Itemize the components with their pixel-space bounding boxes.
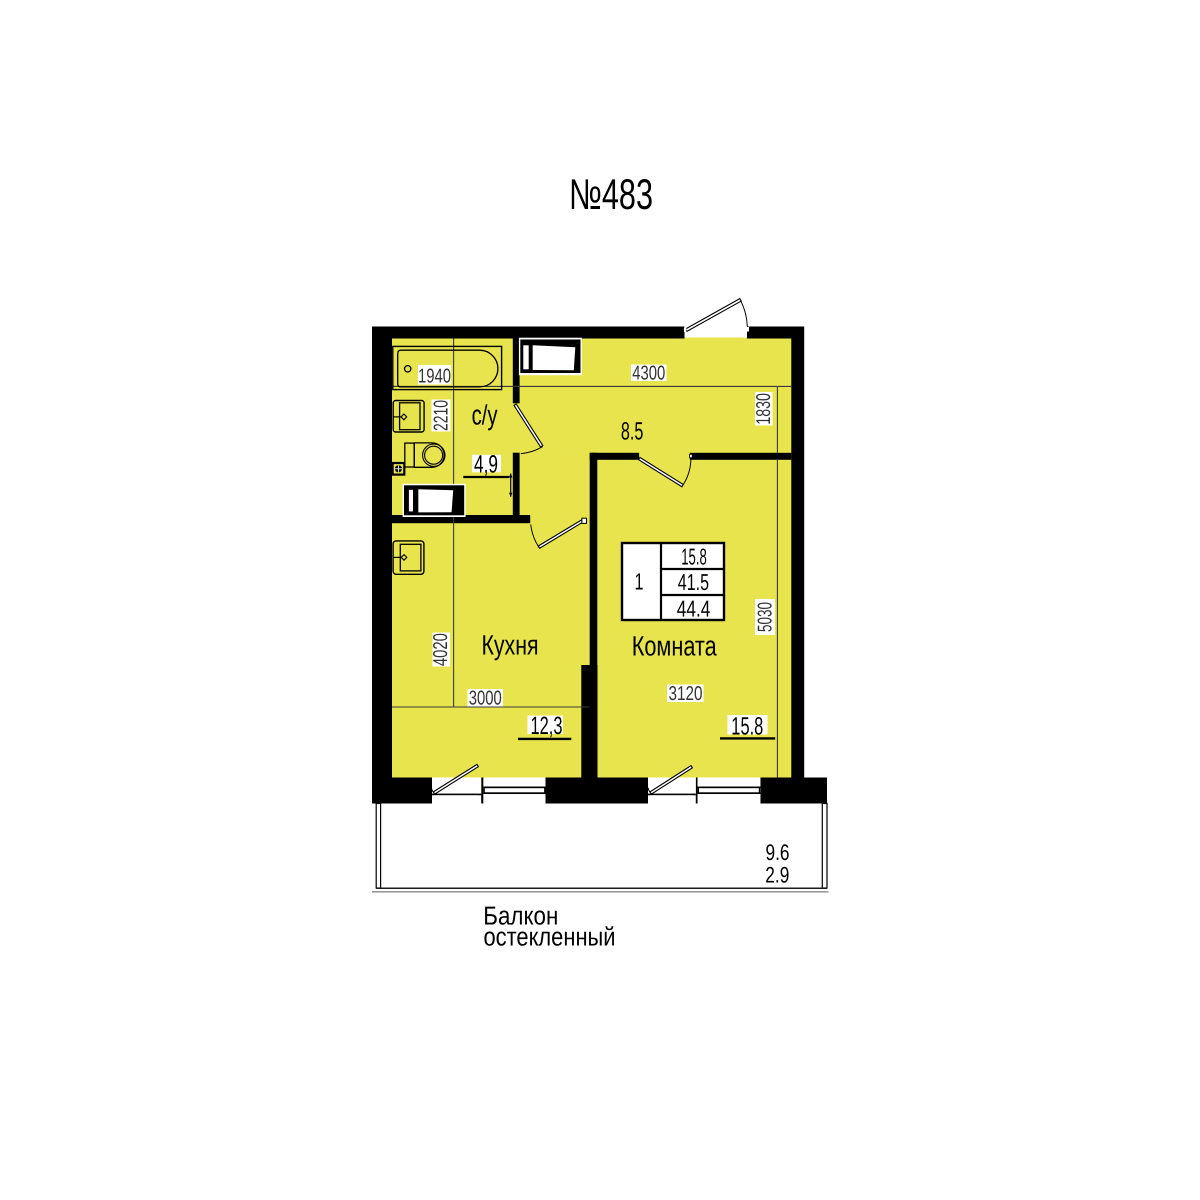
svg-text:4,9: 4,9 (474, 451, 498, 479)
svg-text:15.8: 15.8 (731, 713, 763, 741)
svg-text:остекленный: остекленный (484, 921, 616, 951)
svg-text:5030: 5030 (754, 602, 776, 632)
svg-text:2210: 2210 (430, 400, 452, 431)
svg-text:Кухня: Кухня (482, 630, 539, 661)
svg-text:3000: 3000 (469, 688, 502, 710)
svg-text:Комната: Комната (632, 631, 717, 662)
svg-text:41.5: 41.5 (678, 569, 709, 595)
svg-text:15.8: 15.8 (681, 544, 707, 570)
svg-text:4020: 4020 (430, 633, 452, 666)
svg-text:1940: 1940 (418, 366, 451, 388)
svg-text:1: 1 (635, 569, 644, 595)
svg-text:с/у: с/у (472, 399, 498, 430)
svg-text:3120: 3120 (669, 683, 703, 705)
svg-text:12,3: 12,3 (531, 712, 563, 740)
svg-text:9.6: 9.6 (766, 840, 790, 865)
svg-text:44.4: 44.4 (677, 595, 711, 621)
svg-text:8.5: 8.5 (621, 418, 644, 446)
svg-text:№483: №483 (569, 171, 653, 219)
svg-text:1830: 1830 (753, 393, 775, 425)
svg-text:4300: 4300 (632, 363, 665, 385)
svg-text:2.9: 2.9 (765, 862, 789, 887)
